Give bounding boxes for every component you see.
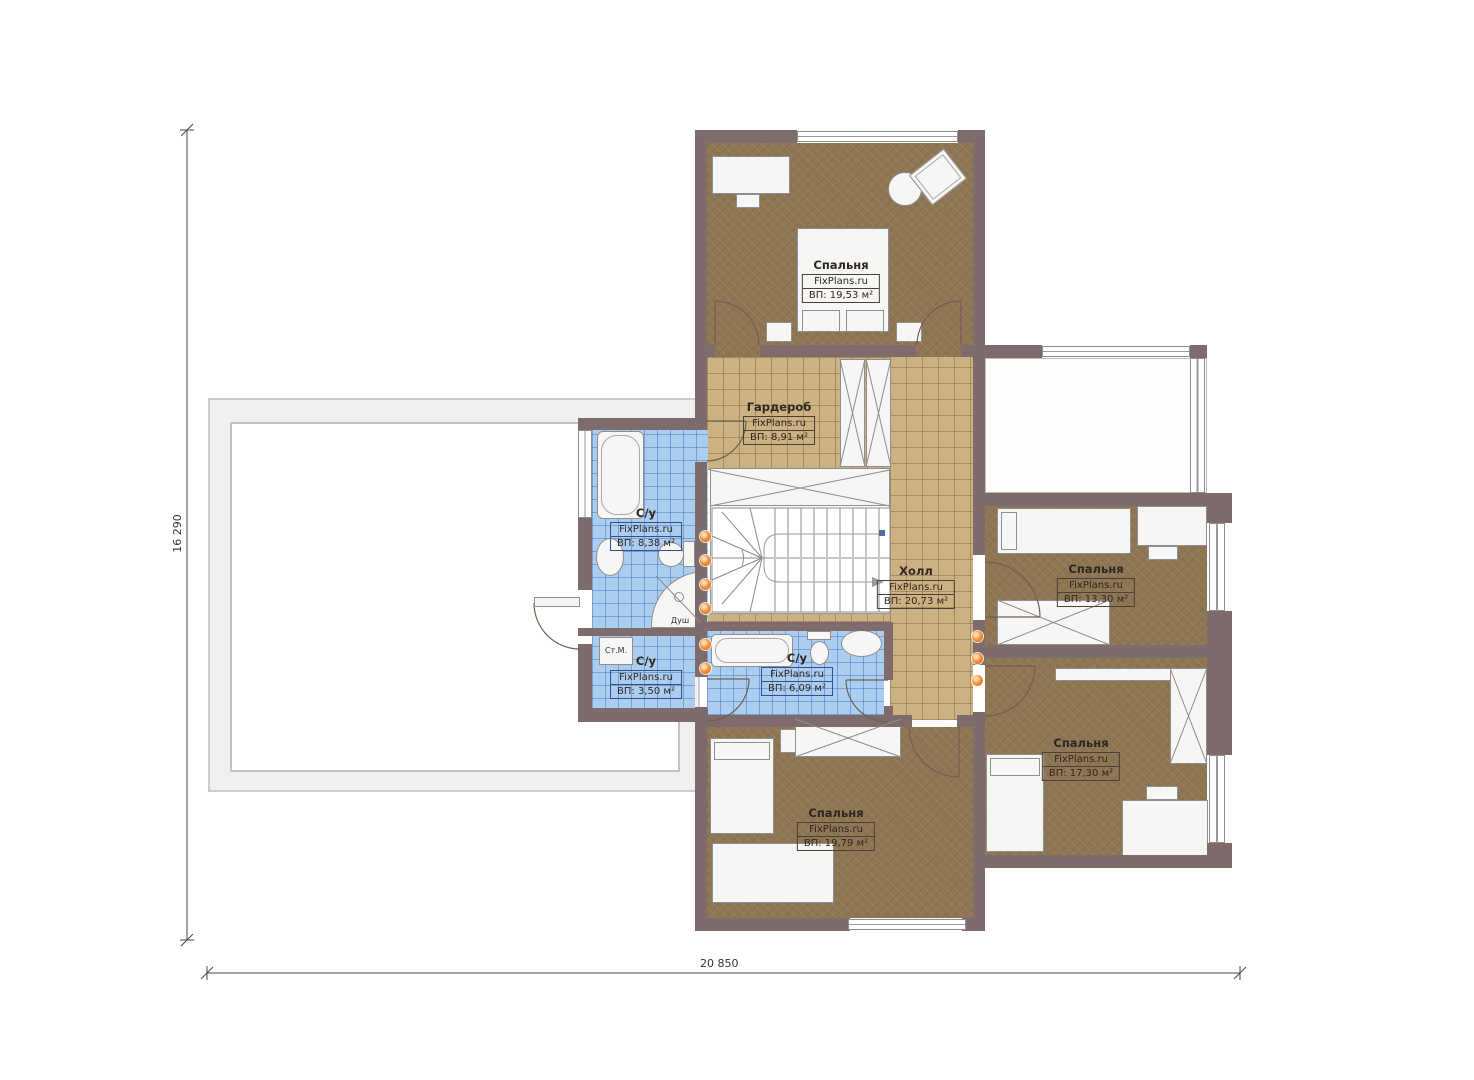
room-name: Спальня (797, 806, 875, 820)
room-name: С/у (761, 651, 833, 665)
heat-dot (700, 555, 711, 566)
room-name: Спальня (1042, 736, 1120, 750)
wall (695, 130, 797, 143)
heat-dot (700, 531, 711, 542)
wall (973, 130, 985, 358)
wall (695, 918, 850, 931)
room-area: ВП: 19,79 м² (798, 837, 874, 850)
chair (1146, 786, 1178, 800)
door-leaf (534, 597, 580, 607)
shower-drain (674, 592, 684, 602)
dimension-height: 16 290 (171, 514, 184, 553)
hall-floor (890, 357, 973, 720)
pillow (714, 742, 770, 760)
nightstand (766, 322, 792, 342)
room-name: Спальня (1057, 562, 1135, 576)
wall (1207, 493, 1232, 523)
window (797, 131, 958, 142)
room-area: ВП: 17,30 м² (1043, 767, 1119, 780)
closet (710, 468, 890, 506)
room-label-bedroom-top: Спальня FixPlans.ruВП: 19,53 м² (802, 258, 880, 303)
room-area: ВП: 3,50 м² (611, 685, 681, 698)
chair (1148, 546, 1178, 560)
wall (1207, 843, 1232, 868)
wall (578, 628, 707, 636)
room-label-bath-center: С/у FixPlans.ruВП: 6,09 м² (761, 651, 833, 696)
shelf (1055, 668, 1177, 681)
window (848, 919, 966, 930)
room-label-bedroom-bottom-right: Спальня FixPlans.ruВП: 17,30 м² (1042, 736, 1120, 781)
room-label-bath-upper: С/у FixPlans.ruВП: 8,38 м² (610, 506, 682, 551)
wall (985, 855, 1232, 868)
heat-dot (700, 579, 711, 590)
wardrobe (1170, 668, 1207, 764)
heat-dot (972, 631, 983, 642)
wall (961, 345, 985, 357)
pillow (990, 758, 1040, 776)
room-area: ВП: 13,30 м² (1058, 593, 1134, 606)
pillow (846, 310, 884, 332)
room-area: ВП: 8,91 м² (744, 431, 814, 444)
wall (578, 518, 592, 590)
desk (712, 843, 834, 903)
room-name: Гардероб (743, 400, 815, 414)
wall (760, 345, 916, 357)
brand-text: FixPlans.ru (798, 823, 874, 837)
room-label-hall: Холл FixPlans.ruВП: 20,73 м² (877, 564, 955, 609)
pillow (1001, 512, 1017, 550)
floor-plan-canvas: Спальня FixPlans.ruВП: 19,53 м² Гардероб… (0, 0, 1474, 1080)
brand-text: FixPlans.ru (803, 275, 879, 289)
room-label-bedroom-bottom: Спальня FixPlans.ruВП: 19,79 м² (797, 806, 875, 851)
desk (712, 156, 790, 194)
brand-text: FixPlans.ru (744, 417, 814, 431)
brand-text: FixPlans.ru (1058, 579, 1134, 593)
room-area: ВП: 20,73 м² (878, 595, 954, 608)
room-name: Спальня (802, 258, 880, 272)
window (578, 430, 592, 518)
wall (1190, 345, 1207, 358)
wall (578, 708, 708, 722)
washing-machine-label: Ст.М. (605, 646, 627, 655)
sink (841, 630, 882, 657)
wall (985, 345, 1042, 358)
wall (884, 622, 893, 680)
wall (973, 712, 985, 931)
heat-dot (700, 603, 711, 614)
desk (1122, 800, 1208, 856)
room-name: Холл (877, 564, 955, 578)
room-area: ВП: 6,09 м² (762, 682, 832, 695)
wall (707, 622, 891, 631)
window (1209, 523, 1225, 611)
nightstand (896, 322, 922, 342)
window (1042, 346, 1190, 357)
wall (985, 493, 1232, 506)
brand-text: FixPlans.ru (611, 671, 681, 685)
toilet (807, 631, 831, 640)
wall (695, 357, 707, 420)
room-area: ВП: 19,53 м² (803, 289, 879, 302)
wardrobe-unit (840, 359, 865, 467)
wall (695, 130, 707, 357)
heat-dot (700, 639, 711, 650)
brand-text: FixPlans.ru (1043, 753, 1119, 767)
dimension-width: 20 850 (700, 957, 739, 970)
chair (736, 194, 760, 208)
brand-text: FixPlans.ru (762, 668, 832, 682)
wall (578, 418, 707, 430)
desk (1137, 506, 1207, 546)
room-label-bath-left: С/у FixPlans.ruВП: 3,50 м² (610, 654, 682, 699)
bed (997, 508, 1131, 554)
wall (695, 715, 912, 727)
toilet (683, 541, 695, 567)
window (1190, 358, 1205, 493)
heat-dot (700, 663, 711, 674)
heat-dot (972, 675, 983, 686)
shower-label: Душ (671, 616, 689, 625)
room-name: С/у (610, 506, 682, 520)
wall (1207, 611, 1232, 755)
wall (695, 345, 715, 357)
wall (985, 645, 1232, 658)
heat-dot (972, 653, 983, 664)
wardrobe-unit (866, 359, 891, 467)
brand-text: FixPlans.ru (611, 523, 681, 537)
brand-text: FixPlans.ru (878, 581, 954, 595)
pillow (802, 310, 840, 332)
room-name: С/у (610, 654, 682, 668)
wall (695, 727, 707, 931)
wall (973, 358, 985, 555)
window (1209, 755, 1225, 843)
room-area: ВП: 8,38 м² (611, 537, 681, 550)
room-label-bedroom-right: Спальня FixPlans.ruВП: 13,30 м² (1057, 562, 1135, 607)
room-label-wardrobe: Гардероб FixPlans.ruВП: 8,91 м² (743, 400, 815, 445)
balcony-floor (985, 358, 1207, 493)
